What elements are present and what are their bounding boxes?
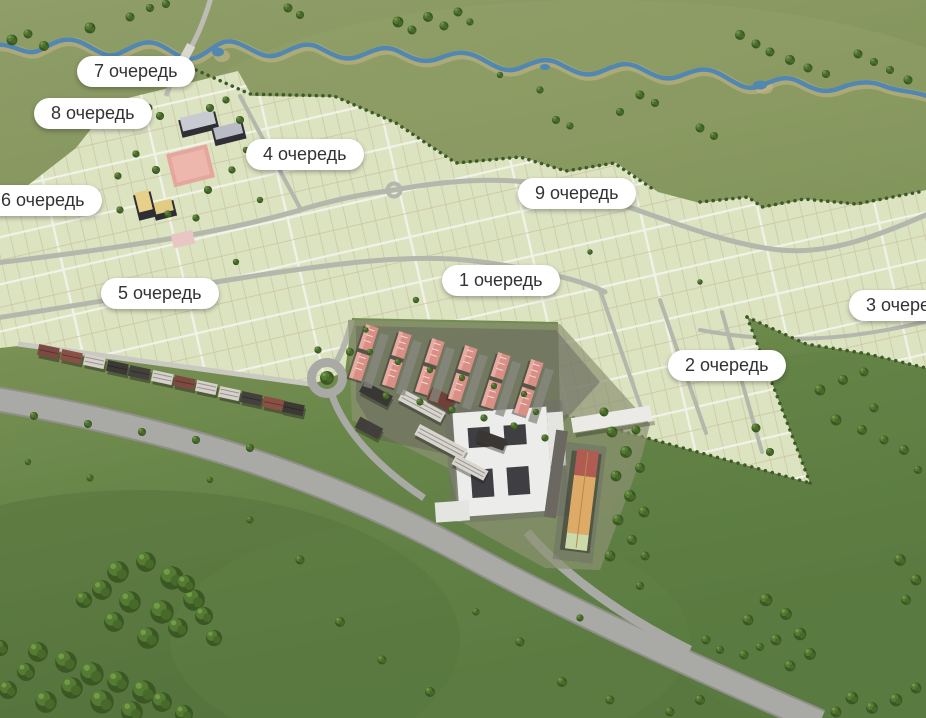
- phase-label-8[interactable]: 8 очередь: [34, 98, 152, 129]
- phase-label-5[interactable]: 5 очередь: [101, 278, 219, 309]
- phase-label-2[interactable]: 2 очередь: [668, 350, 786, 381]
- phase-label-4[interactable]: 4 очередь: [246, 139, 364, 170]
- phase-label-6[interactable]: 6 очередь: [0, 185, 102, 216]
- masterplan-map: 7 очередь8 очередь4 очередь6 очередь9 оч…: [0, 0, 926, 718]
- phase-labels-layer: 7 очередь8 очередь4 очередь6 очередь9 оч…: [0, 0, 926, 718]
- phase-label-3[interactable]: 3 очередь: [849, 290, 926, 321]
- phase-label-1[interactable]: 1 очередь: [442, 265, 560, 296]
- phase-label-9[interactable]: 9 очередь: [518, 178, 636, 209]
- phase-label-7[interactable]: 7 очередь: [77, 56, 195, 87]
